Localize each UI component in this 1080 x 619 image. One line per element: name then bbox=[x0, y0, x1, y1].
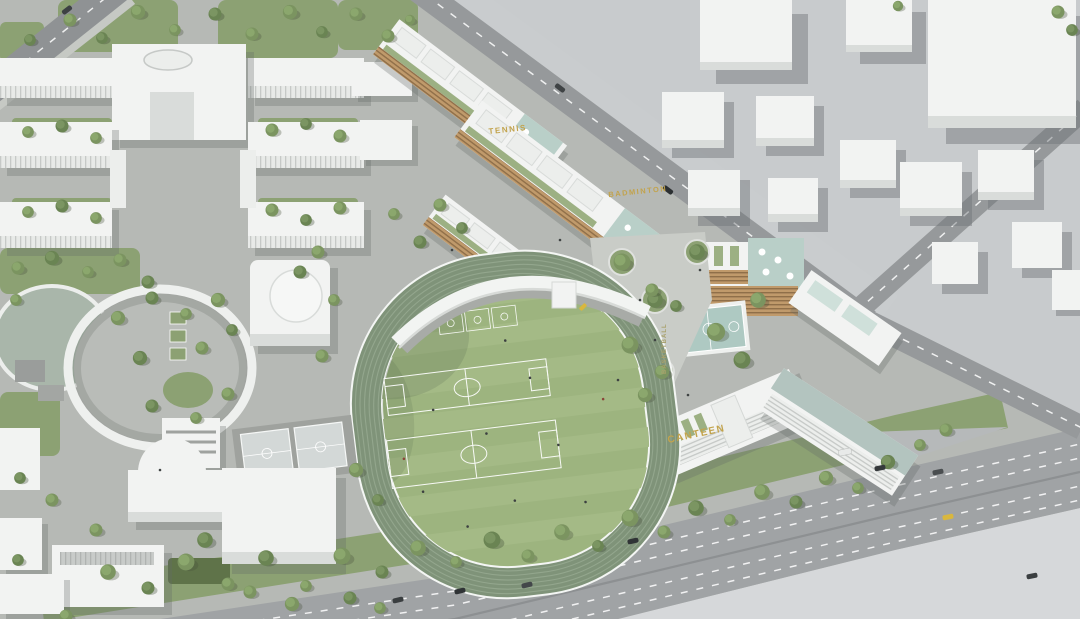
aerial-campus-render: TENNIS BADMINTON CANTEEN BASKETBALL bbox=[0, 0, 1080, 619]
pond-deck bbox=[15, 360, 45, 382]
context-block bbox=[900, 162, 972, 226]
render-canvas: TENNIS BADMINTON CANTEEN BASKETBALL bbox=[0, 0, 1080, 619]
circular-garden bbox=[68, 289, 252, 447]
context-block bbox=[1052, 270, 1080, 316]
basketball-sign: BASKETBALL bbox=[662, 323, 668, 374]
classroom-slab bbox=[0, 58, 119, 106]
roof-terrace bbox=[748, 238, 804, 290]
flat-hall bbox=[222, 468, 346, 574]
gate-building bbox=[112, 44, 254, 148]
round-lawn bbox=[163, 372, 213, 408]
context-block bbox=[662, 92, 734, 158]
small-block bbox=[0, 518, 48, 576]
link-wing bbox=[240, 150, 256, 208]
context-block bbox=[928, 0, 1080, 144]
small-block bbox=[0, 574, 70, 619]
link-wing bbox=[110, 150, 126, 208]
stair-tower bbox=[552, 282, 576, 308]
small-block bbox=[360, 120, 418, 166]
context-block bbox=[700, 0, 808, 84]
pond-deck bbox=[38, 385, 64, 401]
context-block bbox=[756, 96, 824, 156]
gate-oval-canopy bbox=[144, 50, 192, 70]
